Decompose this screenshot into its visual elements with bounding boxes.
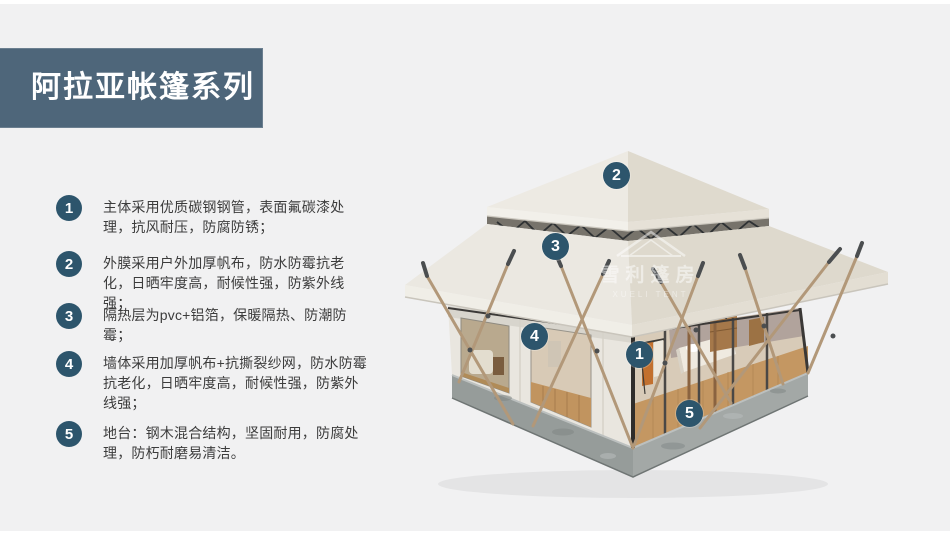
feature-item-4: 4 墙体采用加厚帆布+抗撕裂纱网，防水防霉抗老化，日晒牢度高，耐候性强，防紫外线… [56, 351, 386, 413]
tent-marker-5: 5 [676, 400, 703, 427]
tent-marker-2: 2 [603, 162, 630, 189]
page-title: 阿拉亚帐篷系列 [31, 73, 255, 103]
feature-item-3: 3 隔热层为pvc+铝箔，保暖隔热、防潮防霉； [56, 303, 386, 345]
feature-number-badge: 4 [56, 351, 82, 377]
page-title-bar: 阿拉亚帐篷系列 [0, 48, 263, 128]
feature-number-badge: 1 [56, 195, 82, 221]
feature-text: 地台：钢木混合结构，坚固耐用，防腐处理，防朽耐磨易清洁。 [103, 423, 371, 463]
tent-marker-1: 1 [626, 341, 653, 368]
feature-number-badge: 2 [56, 251, 82, 277]
feature-text: 主体采用优质碳钢钢管，表面氟碳漆处理，抗风耐压，防腐防锈； [103, 197, 371, 237]
feature-text: 墙体采用加厚帆布+抗撕裂纱网，防水防霉抗老化，日晒牢度高，耐候性强，防紫外线强； [103, 353, 371, 413]
feature-text: 隔热层为pvc+铝箔，保暖隔热、防潮防霉； [103, 305, 371, 345]
feature-number-badge: 3 [56, 303, 82, 329]
tent-illustration [393, 136, 950, 526]
feature-number-badge: 5 [56, 421, 82, 447]
feature-item-5: 5 地台：钢木混合结构，坚固耐用，防腐处理，防朽耐磨易清洁。 [56, 421, 386, 463]
tent-marker-4: 4 [521, 323, 548, 350]
top-edge-strip [0, 0, 950, 4]
slide-background: 阿拉亚帐篷系列 1 主体采用优质碳钢钢管，表面氟碳漆处理，抗风耐压，防腐防锈； … [0, 0, 950, 534]
feature-item-1: 1 主体采用优质碳钢钢管，表面氟碳漆处理，抗风耐压，防腐防锈； [56, 195, 386, 237]
tent-marker-3: 3 [542, 233, 569, 260]
tent-image: 雪利篷房 XUELI TENT 2 3 4 1 5 [393, 136, 950, 526]
